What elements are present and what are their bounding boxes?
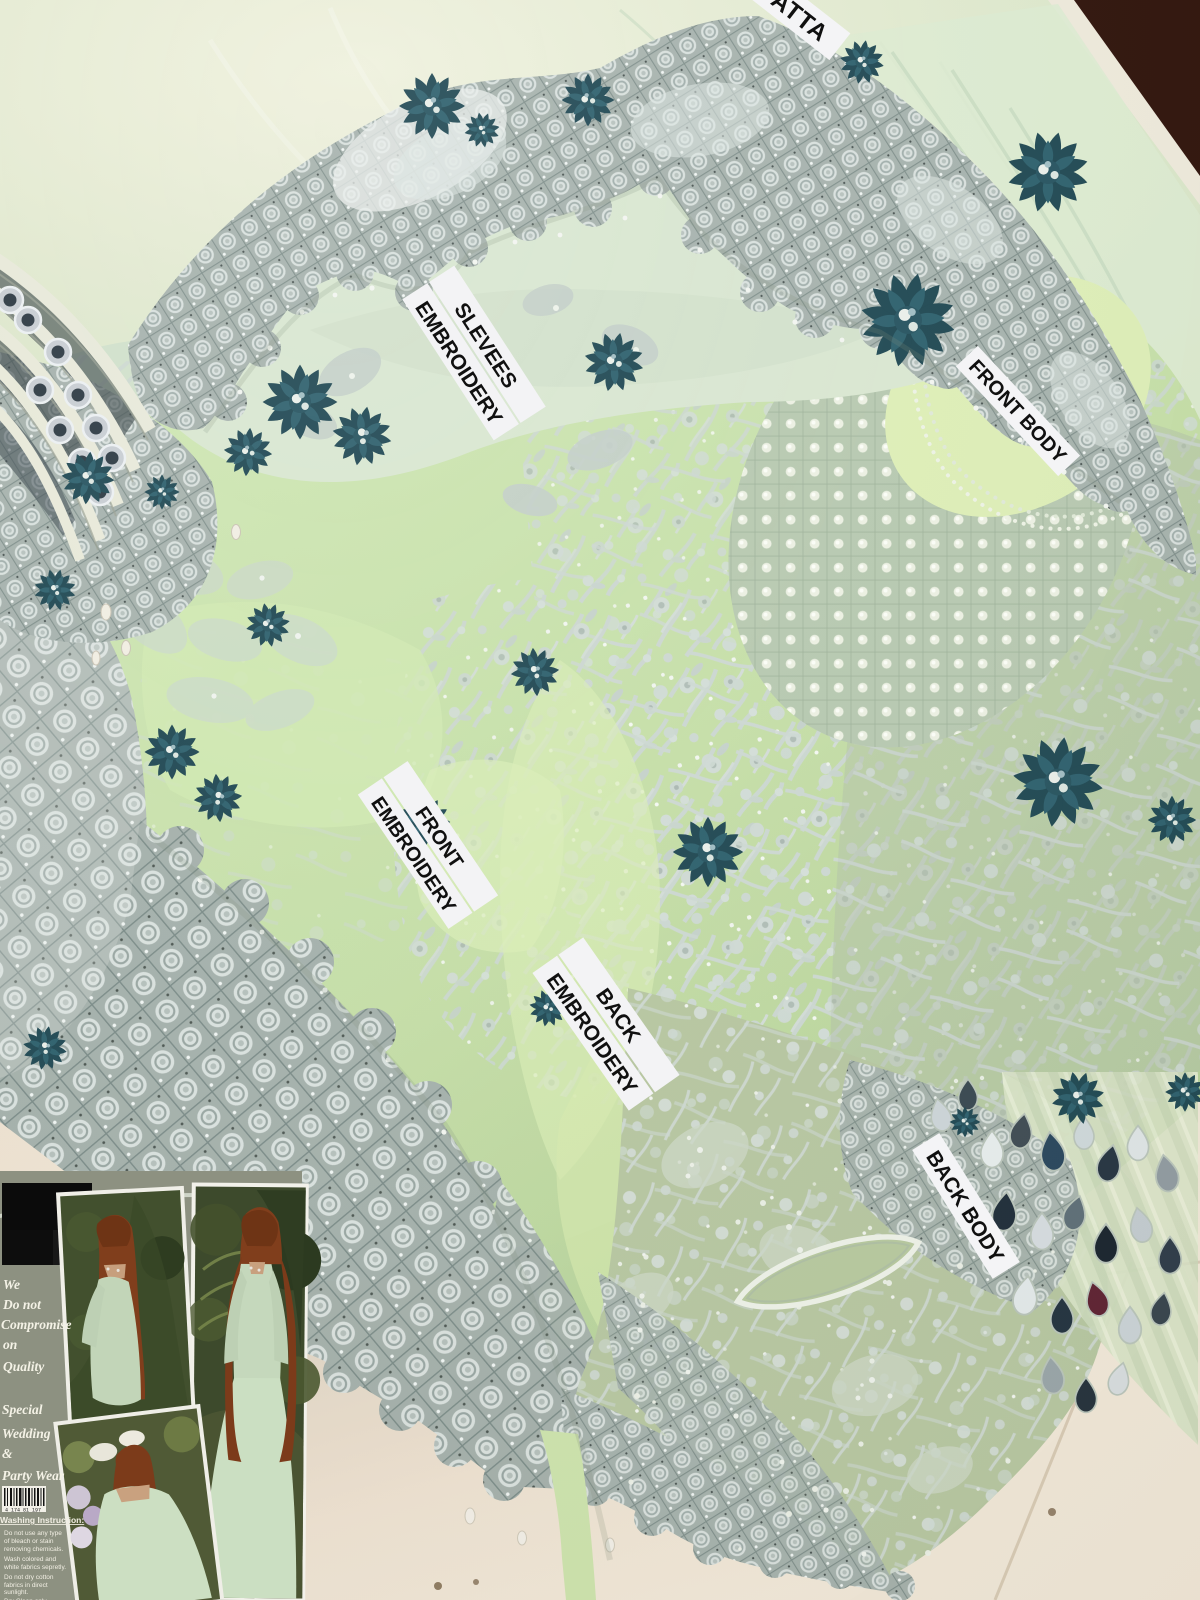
svg-text:Quality: Quality xyxy=(3,1359,45,1374)
svg-text:Party Wear: Party Wear xyxy=(2,1468,65,1483)
svg-text:of bleach or stain: of bleach or stain xyxy=(4,1538,54,1545)
svg-text:4 174 81 197: 4 174 81 197 xyxy=(5,1508,41,1514)
svg-text:on: on xyxy=(3,1337,17,1352)
svg-text:sunlight.: sunlight. xyxy=(4,1589,28,1596)
svg-text:white fabrics sepretly.: white fabrics sepretly. xyxy=(3,1564,66,1571)
svg-text:Wedding: Wedding xyxy=(2,1426,51,1441)
svg-text:Washing Instruction:: Washing Instruction: xyxy=(0,1515,84,1525)
svg-text:&: & xyxy=(2,1446,13,1461)
svg-text:Do not: Do not xyxy=(2,1297,42,1312)
svg-text:We: We xyxy=(3,1277,20,1292)
svg-text:removing chemicals.: removing chemicals. xyxy=(4,1546,63,1553)
svg-text:Compromise: Compromise xyxy=(1,1317,72,1332)
svg-text:Do not use any type: Do not use any type xyxy=(4,1530,62,1537)
svg-text:Wash colored and: Wash colored and xyxy=(4,1556,57,1563)
svg-text:fabrics in direct: fabrics in direct xyxy=(4,1582,48,1589)
svg-text:Do not dry cotton: Do not dry cotton xyxy=(4,1574,54,1581)
svg-text:Special: Special xyxy=(2,1402,43,1417)
